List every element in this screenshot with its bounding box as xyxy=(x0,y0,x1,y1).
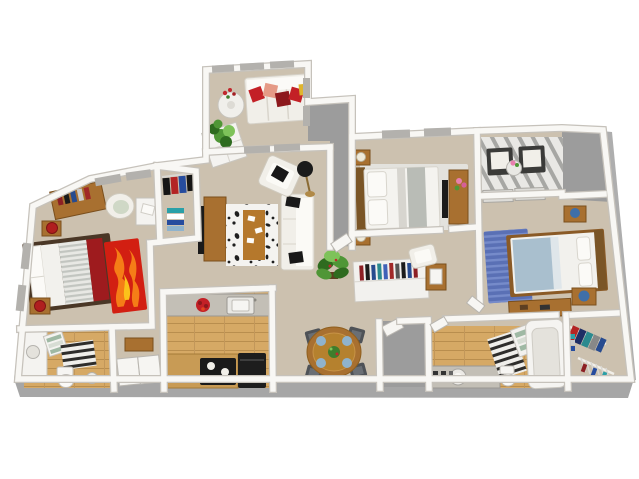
tv-console xyxy=(204,197,226,261)
pillow xyxy=(368,199,388,225)
dining-area xyxy=(304,326,367,382)
place-setting xyxy=(316,336,326,346)
vanity-sink xyxy=(27,346,40,359)
place-setting xyxy=(316,358,326,368)
living-sofa xyxy=(281,194,314,270)
place-setting xyxy=(342,336,352,346)
picture-frame xyxy=(430,269,442,284)
dresser-tv xyxy=(442,180,448,218)
side-cabinet xyxy=(426,264,446,290)
living-rug xyxy=(226,204,278,266)
place-setting xyxy=(342,358,352,368)
window xyxy=(424,128,451,137)
bed-right xyxy=(506,229,608,298)
fruit-bowl xyxy=(196,298,210,312)
window xyxy=(274,144,300,152)
blue-blanket xyxy=(512,237,556,292)
window xyxy=(270,60,294,68)
playing-card xyxy=(247,238,254,244)
window xyxy=(240,62,264,70)
blue-vase xyxy=(570,208,580,218)
pillow xyxy=(367,171,387,197)
window xyxy=(303,78,310,98)
red-lamp xyxy=(35,301,46,312)
window xyxy=(212,64,234,72)
window xyxy=(303,106,310,126)
pillow xyxy=(576,237,591,261)
table-lamp xyxy=(357,153,366,162)
centerpiece xyxy=(328,346,340,358)
floorplan-canvas xyxy=(0,0,639,479)
master-bed xyxy=(355,165,440,232)
window xyxy=(382,130,410,139)
closet-right-wall xyxy=(566,315,568,388)
blue-vase xyxy=(579,291,590,302)
red-lamp xyxy=(47,223,58,234)
hall-bench xyxy=(125,338,153,351)
wicker-chair xyxy=(518,145,545,173)
faucet xyxy=(254,299,257,302)
green-armchair xyxy=(106,194,134,219)
bed-runner-gray xyxy=(407,167,427,228)
sink-basin xyxy=(232,300,249,311)
pillow xyxy=(578,263,593,287)
kitchen-counter xyxy=(165,294,272,316)
bedroom-right-top-wall xyxy=(480,193,604,196)
window xyxy=(244,146,270,154)
table-pedestal xyxy=(227,101,235,109)
master-right-wall xyxy=(477,131,480,302)
striped-bath-rug xyxy=(60,340,96,370)
floorplan-image xyxy=(0,0,639,479)
sofa-pillow-black2 xyxy=(288,251,303,264)
